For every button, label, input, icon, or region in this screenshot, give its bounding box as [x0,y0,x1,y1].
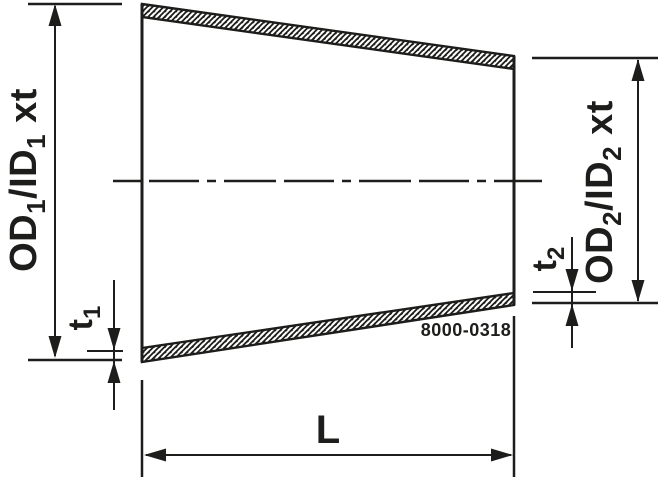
arrowhead-od2-up [632,59,645,81]
part-number: 8000-0318 [421,320,512,340]
label-length: L [316,408,340,452]
arrowhead-l-left [144,449,166,462]
label-t2: t2 [526,247,570,272]
arrowhead-t2-up [566,304,579,326]
arrowhead-od2-down [632,280,645,302]
arrowhead-t1-down [108,328,121,350]
arrowhead-t2-down [566,269,579,291]
arrowhead-l-right [491,449,513,462]
arrowhead-od1-up [49,4,62,26]
pipe-body [113,4,542,362]
label-od2-id2: OD2/ID2 xt [579,100,627,284]
label-t1: t1 [62,306,106,331]
arrowhead-t1-up [108,361,121,383]
dimension-t1: t1 [62,280,123,410]
drawing-canvas: OD1/ID1 xt t1 OD2/ID2 xt t2 L 8000-0318 [0,0,659,477]
pipe-top-wall [142,4,514,69]
arrowhead-od1-down [49,336,62,358]
label-od1-id1: OD1/ID1 xt [3,88,51,272]
reducer-diagram: OD1/ID1 xt t1 OD2/ID2 xt t2 L 8000-0318 [0,0,659,477]
